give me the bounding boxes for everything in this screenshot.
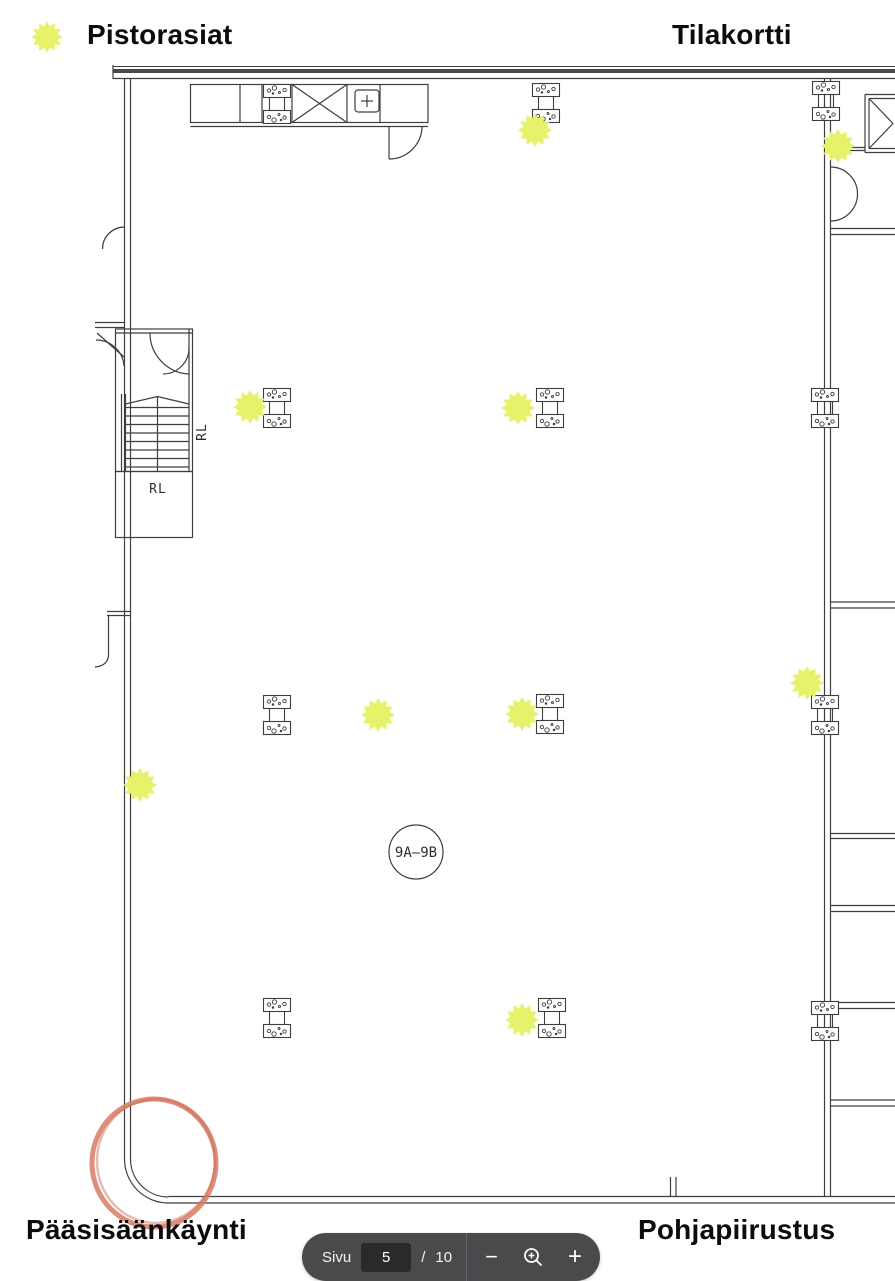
floorplan-label: Pohjapiirustus: [638, 1214, 835, 1246]
zoom-out-button[interactable]: −: [479, 1244, 504, 1270]
outlet-marker[interactable]: [361, 698, 395, 732]
outlet-marker[interactable]: [233, 390, 267, 424]
outlet-symbol: [539, 999, 566, 1038]
stairs-label-side: RL: [195, 423, 210, 441]
outlet-symbol: [813, 82, 840, 121]
kitchen-counter: [191, 85, 429, 160]
walls: [113, 65, 895, 1203]
outlet-symbol: [537, 695, 564, 734]
magnifier-zoom-icon: [522, 1246, 544, 1268]
stairwell: [116, 329, 193, 538]
elevator-shaft: [865, 95, 895, 153]
outlet-marker[interactable]: [123, 768, 157, 802]
stairs-label-bottom: RL: [149, 482, 167, 497]
outlet-symbol: [264, 696, 291, 735]
outlet-symbols-layer: [264, 82, 840, 1041]
room-circle-label: 9A–9B: [395, 845, 437, 861]
page-controls: Sivu / 10: [302, 1243, 466, 1272]
page-label: Sivu: [322, 1249, 351, 1266]
outlet-markers-layer: [123, 113, 855, 1037]
outlet-symbol: [264, 999, 291, 1038]
outlet-marker[interactable]: [505, 697, 539, 731]
outlet-symbol: [537, 389, 564, 428]
floorplan-drawing: RL RL 9A–9B: [0, 0, 895, 1270]
outlet-marker[interactable]: [501, 391, 535, 425]
double-door: [831, 167, 858, 221]
room-circle: 9A–9B: [389, 825, 443, 879]
zoom-tool-button[interactable]: [516, 1244, 550, 1270]
outlet-symbol: [264, 389, 291, 428]
page-toolbar: Sivu / 10 − +: [302, 1233, 600, 1281]
page-total: 10: [435, 1249, 452, 1266]
entrance-annotation-circle: [92, 1099, 216, 1227]
outlet-marker[interactable]: [790, 666, 824, 700]
outlet-marker[interactable]: [505, 1003, 539, 1037]
outlet-marker[interactable]: [821, 129, 855, 163]
page-separator: /: [421, 1249, 425, 1266]
page-number-input[interactable]: [361, 1243, 411, 1272]
zoom-controls: − +: [467, 1233, 600, 1281]
outlet-symbol: [264, 85, 291, 124]
zoom-in-button[interactable]: +: [562, 1243, 588, 1271]
main-entrance-label: Pääsisäänkäynti: [26, 1214, 247, 1246]
